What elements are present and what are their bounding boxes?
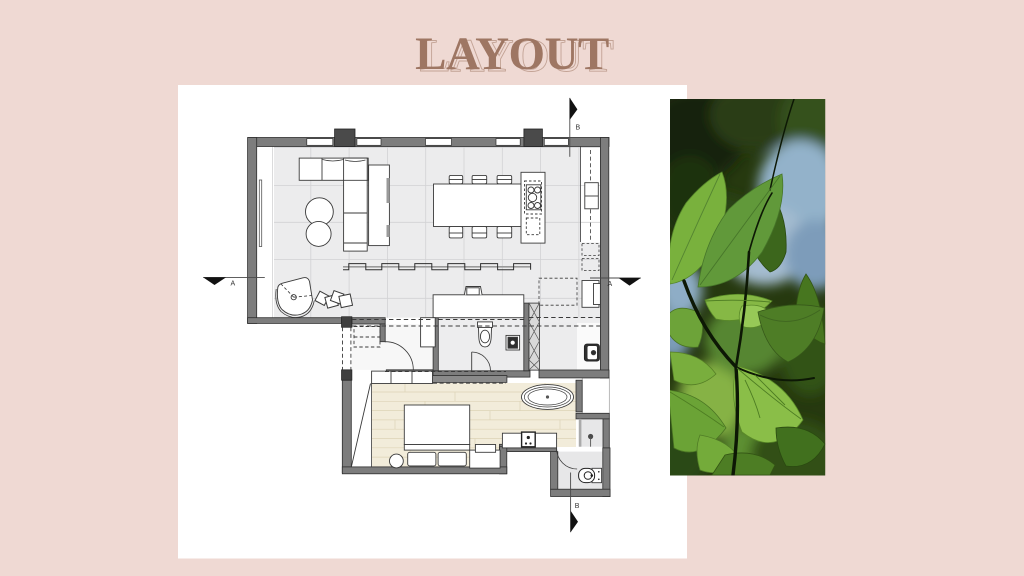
svg-text:B: B (575, 503, 580, 510)
svg-text:B: B (576, 125, 581, 132)
svg-text:A: A (231, 281, 236, 288)
svg-text:A: A (608, 281, 613, 288)
